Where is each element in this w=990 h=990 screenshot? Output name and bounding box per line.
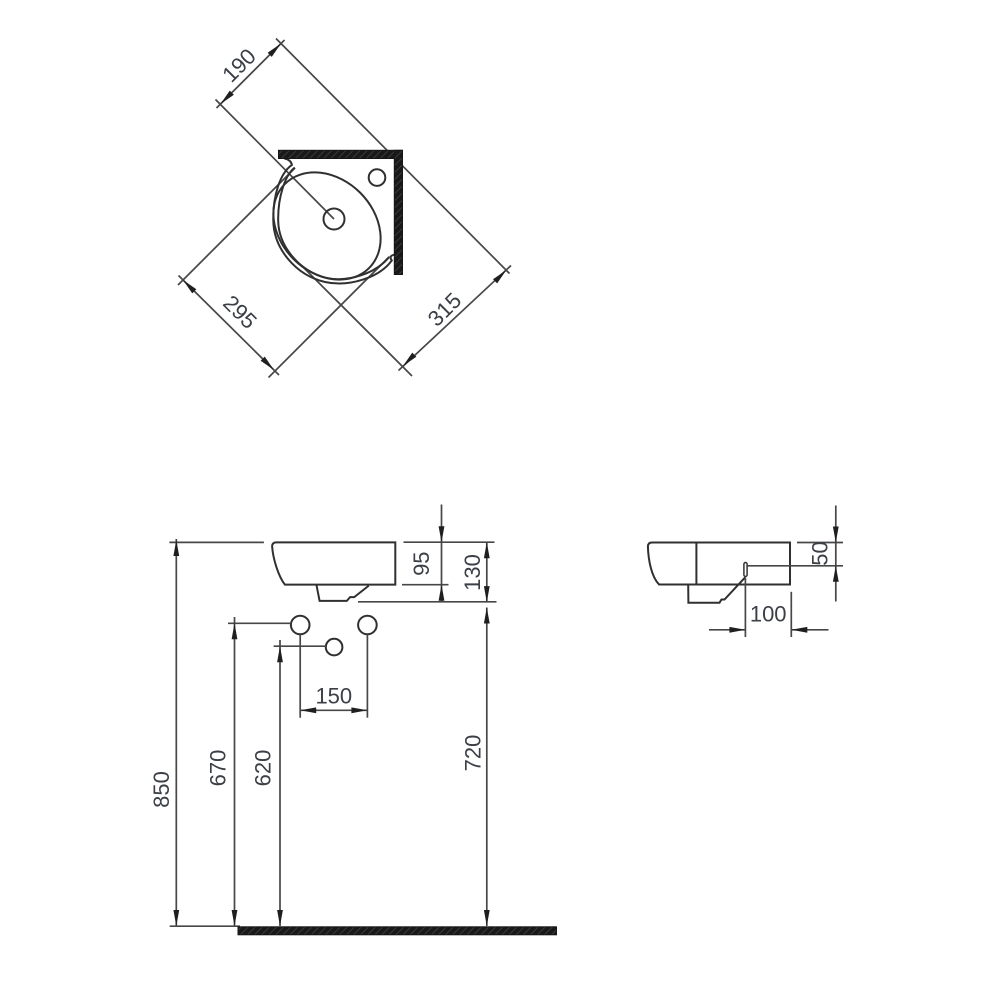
svg-text:130: 130 <box>460 554 485 591</box>
svg-text:720: 720 <box>461 735 486 772</box>
svg-text:95: 95 <box>409 551 434 575</box>
svg-text:190: 190 <box>217 44 261 88</box>
svg-text:315: 315 <box>423 288 467 332</box>
svg-text:670: 670 <box>206 750 231 787</box>
svg-text:850: 850 <box>149 771 174 808</box>
svg-text:620: 620 <box>251 750 276 787</box>
svg-text:295: 295 <box>218 290 262 334</box>
svg-text:150: 150 <box>315 684 352 709</box>
svg-text:50: 50 <box>808 541 833 565</box>
svg-text:100: 100 <box>750 602 787 627</box>
